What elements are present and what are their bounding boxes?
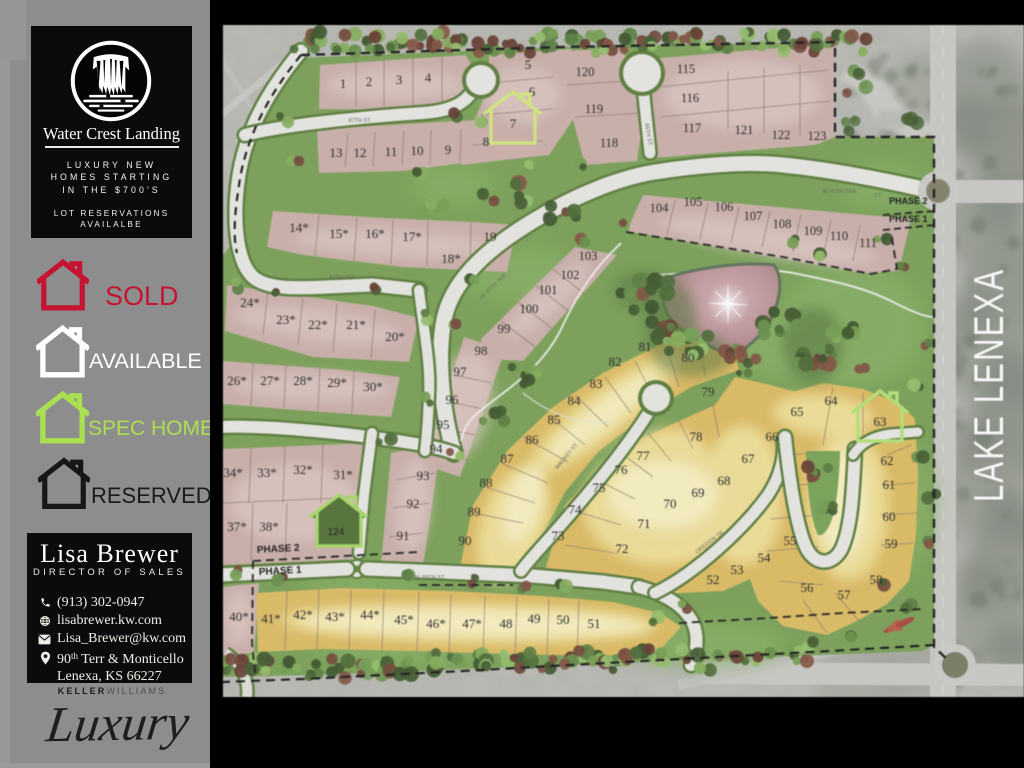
svg-text:LAKE LENEXA: LAKE LENEXA [965, 268, 1012, 502]
